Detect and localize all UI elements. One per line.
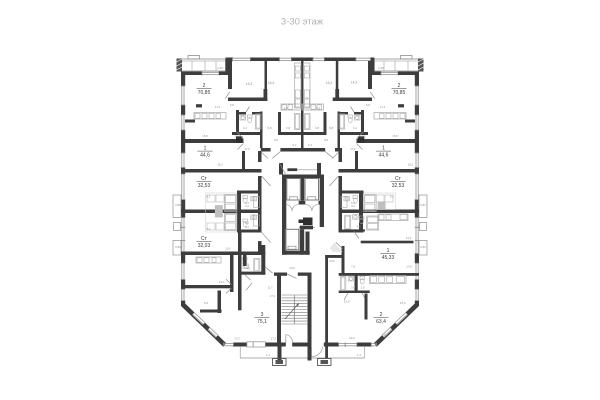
svg-text:45,33: 45,33 — [382, 255, 395, 261]
svg-text:9,8: 9,8 — [329, 126, 334, 130]
svg-text:5,8: 5,8 — [366, 103, 370, 107]
svg-text:17,2: 17,2 — [271, 337, 277, 341]
svg-text:9,8: 9,8 — [274, 138, 278, 142]
svg-text:9,8: 9,8 — [324, 138, 328, 142]
svg-text:11,7: 11,7 — [267, 286, 273, 290]
svg-text:17,2: 17,2 — [360, 135, 366, 139]
svg-text:4,1: 4,1 — [353, 126, 358, 130]
svg-text:75,1: 75,1 — [257, 319, 267, 325]
svg-text:17,2: 17,2 — [244, 147, 250, 151]
svg-text:9,8: 9,8 — [267, 126, 272, 130]
svg-text:0,83: 0,83 — [175, 245, 181, 249]
svg-text:1: 1 — [204, 146, 207, 152]
svg-text:17,2: 17,2 — [234, 337, 240, 341]
svg-text:70,85: 70,85 — [393, 90, 406, 96]
svg-text:4,2: 4,2 — [245, 204, 249, 208]
svg-text:4,2: 4,2 — [245, 225, 249, 229]
svg-text:3,0: 3,0 — [351, 286, 355, 290]
svg-text:9,0: 9,0 — [204, 301, 209, 305]
svg-text:4,1: 4,1 — [246, 267, 251, 271]
svg-text:14,3: 14,3 — [406, 236, 412, 240]
svg-text:0,85: 0,85 — [175, 203, 181, 207]
svg-text:2: 2 — [380, 312, 383, 318]
svg-text:17,2: 17,2 — [234, 135, 240, 139]
svg-text:32,53: 32,53 — [198, 183, 211, 189]
svg-text:1,9: 1,9 — [361, 286, 365, 290]
svg-text:3-30 этаж: 3-30 этаж — [281, 17, 324, 28]
svg-text:52,2: 52,2 — [349, 336, 355, 340]
svg-text:6,2: 6,2 — [308, 143, 312, 147]
svg-text:63,4: 63,4 — [376, 319, 386, 325]
svg-text:6,2: 6,2 — [293, 143, 297, 147]
svg-text:Ст: Ст — [395, 176, 402, 182]
svg-text:2,1: 2,1 — [316, 106, 321, 110]
svg-text:17,2: 17,2 — [270, 294, 276, 298]
svg-text:17,2: 17,2 — [215, 105, 221, 109]
svg-text:5,2: 5,2 — [390, 195, 394, 199]
svg-text:16,2: 16,2 — [408, 163, 414, 167]
svg-text:17,2: 17,2 — [350, 147, 356, 151]
svg-text:2,46: 2,46 — [378, 66, 384, 70]
svg-text:2: 2 — [203, 83, 206, 89]
svg-text:2: 2 — [398, 83, 401, 89]
svg-text:15,8: 15,8 — [392, 134, 398, 138]
svg-text:3: 3 — [261, 312, 264, 318]
svg-text:13,0: 13,0 — [344, 300, 350, 304]
svg-text:1,3: 1,3 — [357, 353, 361, 357]
svg-text:15,8: 15,8 — [202, 134, 208, 138]
svg-text:17,2: 17,2 — [380, 105, 386, 109]
svg-text:5,2: 5,2 — [206, 195, 210, 199]
svg-text:16,2: 16,2 — [217, 163, 223, 167]
svg-text:32,03: 32,03 — [198, 243, 211, 249]
svg-text:10,0: 10,0 — [289, 266, 295, 270]
svg-text:2,49: 2,49 — [217, 66, 223, 70]
svg-text:44,6: 44,6 — [379, 153, 389, 159]
svg-text:15,4: 15,4 — [400, 301, 406, 305]
svg-text:3,8: 3,8 — [315, 126, 320, 130]
svg-text:5,8: 5,8 — [230, 103, 234, 107]
svg-text:32,53: 32,53 — [392, 183, 405, 189]
svg-text:4,2: 4,2 — [351, 204, 355, 208]
svg-text:4,1: 4,1 — [243, 126, 248, 130]
svg-text:3,8: 3,8 — [286, 126, 291, 130]
svg-text:13,0: 13,0 — [329, 259, 335, 263]
svg-text:Ст: Ст — [201, 236, 208, 242]
svg-text:2,1: 2,1 — [284, 106, 289, 110]
svg-text:44,6: 44,6 — [200, 153, 210, 159]
svg-text:7,8: 7,8 — [351, 265, 355, 269]
svg-text:1,3: 1,3 — [266, 353, 270, 357]
svg-text:Ст: Ст — [201, 176, 208, 182]
svg-text:17,8: 17,8 — [406, 265, 412, 269]
svg-text:13,5: 13,5 — [382, 333, 388, 337]
svg-text:14,3: 14,3 — [246, 82, 253, 86]
svg-text:70,85: 70,85 — [198, 90, 211, 96]
svg-text:10,0: 10,0 — [225, 247, 231, 251]
svg-text:16,4: 16,4 — [326, 81, 333, 85]
svg-text:4,2: 4,2 — [357, 225, 362, 229]
svg-text:5,0: 5,0 — [206, 227, 210, 231]
svg-text:16,4: 16,4 — [268, 81, 275, 85]
svg-text:1: 1 — [382, 146, 385, 152]
svg-text:14,0: 14,0 — [219, 280, 225, 284]
svg-text:14,3: 14,3 — [351, 81, 358, 85]
svg-text:1: 1 — [387, 248, 390, 254]
svg-text:0,83: 0,83 — [420, 245, 426, 249]
svg-text:0,83: 0,83 — [420, 203, 426, 207]
